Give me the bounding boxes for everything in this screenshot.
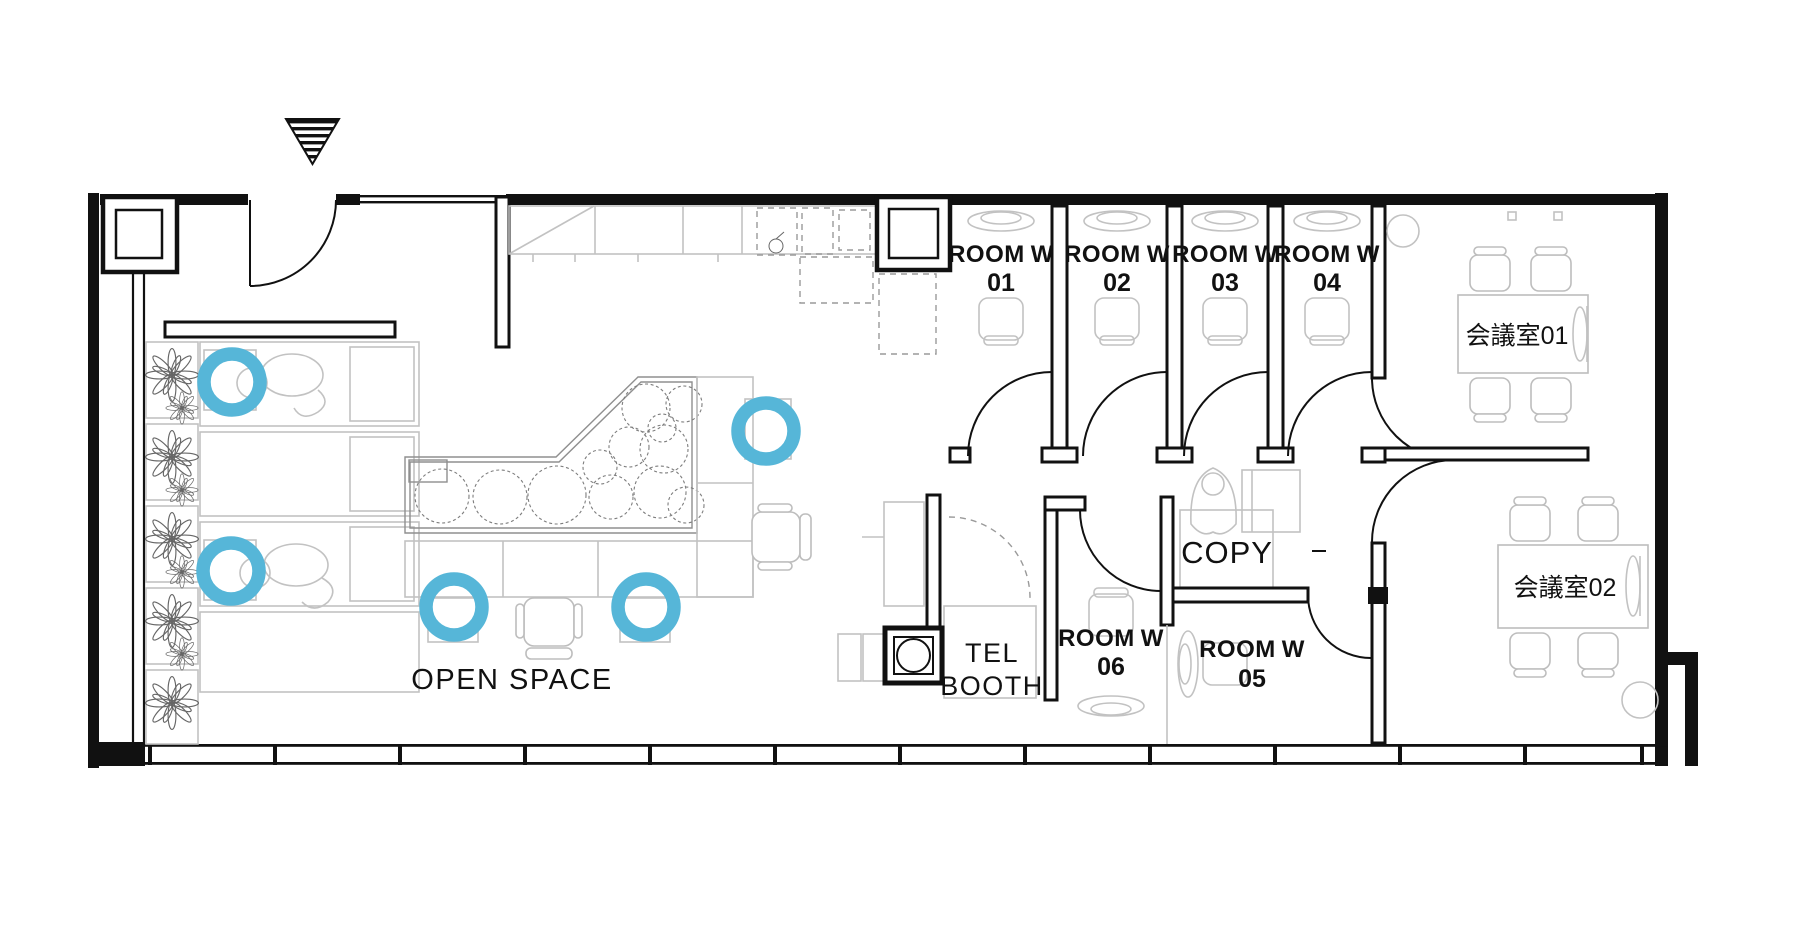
svg-text:ROOMW: ROOMW: [1064, 241, 1170, 268]
svg-text:05: 05: [1238, 665, 1266, 693]
room-01-door: [968, 372, 1052, 456]
svg-text:ROOMW: ROOMW: [948, 241, 1054, 268]
seat-marker[interactable]: [738, 403, 794, 459]
lounge-plants: [146, 342, 199, 744]
seat-marker[interactable]: [426, 579, 482, 635]
copy-label: COPY: [1181, 535, 1273, 570]
svg-text:02: 02: [1103, 269, 1131, 297]
entry-door: [250, 200, 336, 286]
svg-text:ROOMW: ROOMW: [1199, 636, 1305, 663]
room-06: ROOMW 06: [1045, 497, 1173, 744]
office-chair: [752, 504, 811, 570]
lounge-seats: [200, 342, 419, 692]
structural-column: [877, 197, 950, 270]
room-05-door: [1308, 595, 1371, 658]
tel-booth-label-2: BOOTH: [940, 671, 1044, 701]
tel-booth-label-1: TEL: [965, 638, 1019, 668]
open-space-planter: [405, 377, 704, 533]
meeting-divider-wall: [1385, 448, 1588, 460]
room-04: ROOMW 04: [1274, 241, 1380, 297]
meeting-room-01-label: 会議室01: [1466, 322, 1569, 350]
tel-booth: TEL BOOTH: [838, 495, 1044, 701]
room-06-door: [1080, 510, 1161, 591]
open-space-label: OPEN SPACE: [411, 664, 612, 696]
room-05: ROOMW 05: [1178, 631, 1305, 697]
office-chair: [516, 598, 582, 659]
floor-plan-page: OPEN SPACE: [0, 0, 1804, 928]
seat-marker[interactable]: [618, 579, 674, 635]
phone-booth-pod: [885, 628, 942, 683]
svg-text:06: 06: [1097, 653, 1125, 681]
room-06-furniture: [1078, 588, 1144, 716]
tel-booth-door: [949, 517, 1030, 598]
svg-text:03: 03: [1211, 269, 1239, 297]
svg-text:ROOMW: ROOMW: [1172, 241, 1278, 268]
elevator-shaft: [103, 197, 177, 272]
sink: [757, 208, 870, 255]
meeting-room-02-label: 会議室02: [1514, 574, 1617, 602]
copy-room: COPY: [1173, 468, 1371, 658]
entrance-arrow-icon: [280, 119, 346, 164]
rooms-block: ROOMW 01 ROOMW 02 ROOMW 03 ROOMW 04: [948, 206, 1385, 462]
room-02: ROOMW 02: [1064, 241, 1170, 297]
svg-text:04: 04: [1313, 269, 1341, 297]
seat-marker[interactable]: [204, 354, 260, 410]
seat-marker[interactable]: [203, 543, 259, 599]
room-03: ROOMW 03: [1172, 241, 1278, 297]
svg-text:01: 01: [987, 269, 1015, 297]
person-figure: [1191, 468, 1236, 534]
floor-plan-canvas: OPEN SPACE: [0, 0, 1804, 928]
kitchen-counter: [509, 206, 936, 354]
meeting-room-02: 会議室02: [1368, 497, 1658, 743]
room-02-door: [1083, 372, 1167, 456]
svg-text:ROOMW: ROOMW: [1274, 241, 1380, 268]
room-04-door: [1288, 372, 1372, 456]
room-03-door: [1184, 372, 1268, 456]
meeting-room-01: 会議室01: [1387, 212, 1588, 422]
svg-text:ROOMW: ROOMW: [1058, 625, 1164, 652]
room-01: ROOMW 01: [948, 241, 1054, 297]
entry-area: [165, 197, 509, 347]
window-wall-bottom: [99, 744, 1668, 765]
